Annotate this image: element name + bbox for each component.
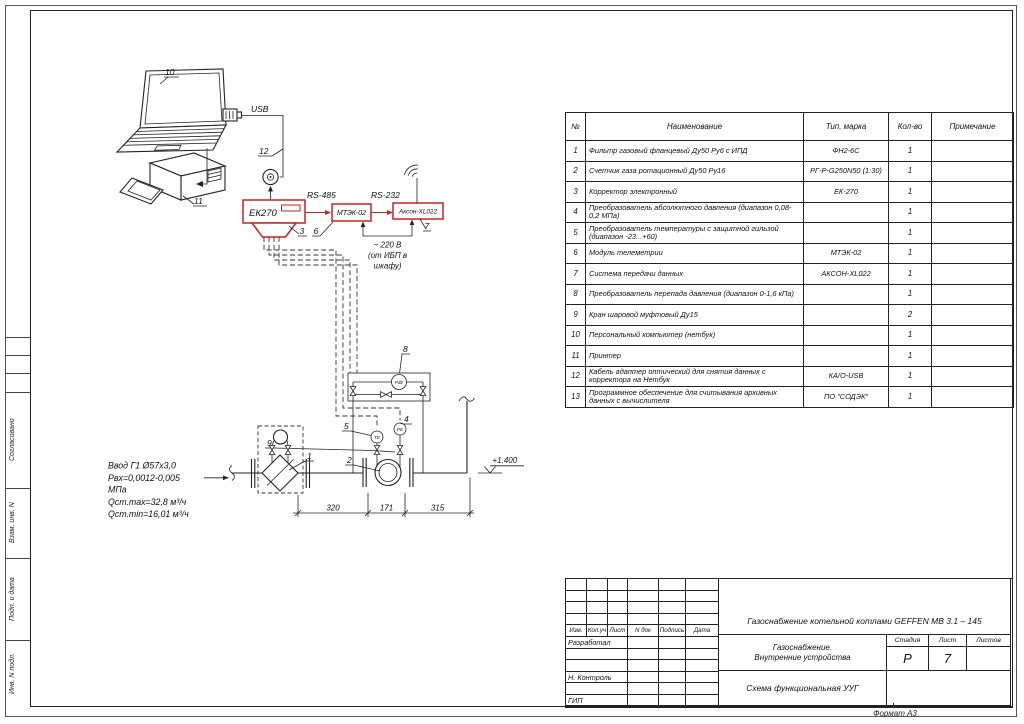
- signature-date-cell: [686, 672, 719, 684]
- equipment-row: 1Фильтр газовый фланцевый Ду50 Ру6 с ИПД…: [566, 141, 1014, 162]
- equipment-cell-qty: 1: [889, 264, 932, 285]
- revision-grid-cell: [566, 591, 587, 603]
- revision-grid-cell: [566, 614, 587, 626]
- callout-dp-number: 8: [403, 344, 408, 354]
- equipment-cell-num: 12: [566, 366, 586, 387]
- elevation-mark: +1.400: [478, 456, 524, 473]
- revision-grid-cell: [587, 579, 608, 591]
- power-note-line1: ~ 220 В: [374, 241, 402, 250]
- usb-label: USB: [251, 104, 269, 114]
- side-label-vzam-inv: Взам. инв. N: [9, 490, 25, 556]
- signature-sign-cell: [659, 695, 686, 707]
- project-title: Газоснабжение котельной котлами GEFFEN M…: [747, 616, 981, 626]
- revision-grid-cell: [608, 602, 628, 614]
- equipment-cell-name: Персональный компьютер (нетбук): [586, 325, 804, 346]
- revision-header-cell: Кол.уч: [587, 625, 608, 637]
- temperature-transducer: ТЕ: [371, 431, 383, 466]
- signature-name-cell: [628, 649, 659, 661]
- revision-grid-cell: [587, 614, 608, 626]
- equipment-cell-name: Преобразователь абсолютного давления (ди…: [586, 202, 804, 223]
- revision-grid-cell: [608, 579, 628, 591]
- equipment-cell-qty: 1: [889, 223, 932, 244]
- equipment-cell-name: Принтер: [586, 346, 804, 367]
- equipment-cell-note: [932, 182, 1014, 203]
- header-type: Тип, марка: [804, 113, 889, 141]
- printer-icon: [120, 153, 225, 204]
- object-title-cell: Газоснабжение. Внутренние устройства: [719, 635, 887, 671]
- revision-grid-cell: [686, 579, 719, 591]
- object-title-line1: Газоснабжение.: [773, 643, 832, 653]
- equipment-row: 3Корректор электронныйЕК-2701: [566, 182, 1014, 203]
- side-label-podp-data: Подп. и дата: [9, 560, 25, 638]
- equipment-row: 9Кран шаровой муфтовый Ду152: [566, 305, 1014, 326]
- equipment-cell-note: [932, 284, 1014, 305]
- equipment-cell-name: Счетчик газа ротационный Ду50 Ру16: [586, 161, 804, 182]
- corrector-label: ЕК270: [249, 208, 278, 219]
- equipment-cell-num: 4: [566, 202, 586, 223]
- dimension-320: 320: [326, 504, 340, 513]
- dp-tag: PdE: [395, 380, 405, 385]
- equipment-row: 5Преобразователь температуры с защитной …: [566, 223, 1014, 244]
- revision-grid-cell: [659, 614, 686, 626]
- equipment-row: 7Система передачи данныхАКСОН-XL0221: [566, 264, 1014, 285]
- signature-role-cell: [566, 660, 628, 672]
- side-label-approved: Согласовано: [9, 394, 25, 486]
- title-block-empty-cell: [887, 671, 1011, 706]
- dimension-315: 315: [431, 504, 445, 513]
- rs485-label: RS-485: [307, 190, 336, 200]
- equipment-cell-name: Корректор электронный: [586, 182, 804, 203]
- equipment-cell-num: 5: [566, 223, 586, 244]
- dp-transducer-assembly: PdE: [348, 373, 430, 473]
- laptop-icon: [117, 69, 226, 152]
- callout-cable: 12: [258, 146, 283, 156]
- equipment-cell-qty: 1: [889, 182, 932, 203]
- header-num: №: [566, 113, 586, 141]
- revision-header-cell: Подпись: [659, 625, 686, 637]
- equipment-cell-name: Преобразователь перепада давления (диапа…: [586, 284, 804, 305]
- callout-printer-number: 11: [194, 196, 203, 206]
- signature-name-cell: [628, 660, 659, 672]
- equipment-cell-note: [932, 141, 1014, 162]
- equipment-row: 2Счетчик газа ротационный Ду50 Ру16РГ-Р-…: [566, 161, 1014, 182]
- callout-transmission-number: 7: [425, 221, 430, 231]
- equipment-cell-name: Кран шаровой муфтовый Ду15: [586, 305, 804, 326]
- equipment-cell-num: 13: [566, 387, 586, 408]
- signature-name-cell: [628, 637, 659, 649]
- equipment-cell-qty: 1: [889, 325, 932, 346]
- equipment-cell-type: РГ-Р-G250N50 (1:30): [804, 161, 889, 182]
- equipment-cell-qty: 1: [889, 141, 932, 162]
- signature-sign-cell: [659, 637, 686, 649]
- equipment-cell-note: [932, 346, 1014, 367]
- equipment-cell-num: 2: [566, 161, 586, 182]
- revision-grid-cell: [587, 602, 608, 614]
- equipment-cell-type: [804, 202, 889, 223]
- gas-pipe: [204, 397, 475, 481]
- inlet-note-line2: Рвх=0,0012-0,005: [108, 473, 180, 483]
- object-title-line2: Внутренние устройства: [754, 653, 850, 663]
- revision-grid-cell: [587, 591, 608, 603]
- callout-pressure-number: 4: [404, 414, 409, 424]
- revision-grid-cell: [566, 579, 587, 591]
- strip-divider: [5, 558, 30, 559]
- equipment-cell-type: [804, 346, 889, 367]
- inlet-note-line4: Qст.max=32,8 м³/ч: [108, 497, 187, 507]
- signature-sign-cell: [659, 672, 686, 684]
- dimension-171: 171: [380, 504, 393, 513]
- equipment-cell-qty: 1: [889, 387, 932, 408]
- title-block: Изм.Кол.учЛистN докПодписьДатаРазработал…: [565, 578, 1013, 708]
- equipment-cell-type: [804, 284, 889, 305]
- revision-grid-cell: [686, 591, 719, 603]
- equipment-row: 11Принтер1: [566, 346, 1014, 367]
- callout-pressure: 4: [401, 414, 413, 424]
- equipment-cell-note: [932, 202, 1014, 223]
- pressure-transducer: РЕ: [394, 423, 406, 468]
- callout-corrector-number: 3: [300, 226, 305, 236]
- inlet-note-line5: Qст.min=16,01 м³/ч: [108, 509, 189, 519]
- strip-divider: [5, 640, 30, 641]
- sheets-header: Листов: [967, 635, 1011, 647]
- equipment-cell-qty: 2: [889, 305, 932, 326]
- side-label-inv-podl: Инв. N подл.: [9, 642, 25, 706]
- equipment-cell-type: МТЭК-02: [804, 243, 889, 264]
- revision-header-cell: Дата: [686, 625, 719, 637]
- sheet-value-cell: 7: [929, 647, 967, 671]
- revision-grid-cell: [659, 579, 686, 591]
- signature-role-cell: Разработал: [566, 637, 628, 649]
- equipment-cell-name: Фильтр газовый фланцевый Ду50 Ру6 с ИПД: [586, 141, 804, 162]
- equipment-cell-name: Кабель адаптер оптический для снятия дан…: [586, 366, 804, 387]
- equipment-cell-qty: 1: [889, 243, 932, 264]
- callout-temperature-number: 5: [344, 421, 349, 431]
- revision-grid-cell: [628, 614, 659, 626]
- revision-grid-cell: [608, 614, 628, 626]
- signature-date-cell: [686, 649, 719, 661]
- data-transmission-module: Аксон-XL022: [393, 203, 443, 219]
- signature-role-cell: Н. Контроль: [566, 672, 628, 684]
- signature-role-cell: [566, 683, 628, 695]
- revision-header-cell: Лист: [608, 625, 628, 637]
- equipment-row: 13Программное обеспечение для считывания…: [566, 387, 1014, 408]
- callout-transmission: 7: [420, 219, 431, 231]
- equipment-cell-note: [932, 243, 1014, 264]
- equipment-cell-type: КА/О-USB: [804, 366, 889, 387]
- signature-date-cell: [686, 660, 719, 672]
- equipment-cell-type: ФН2-6С: [804, 141, 889, 162]
- equipment-cell-type: [804, 223, 889, 244]
- telemetry-module: МТЭК-02: [332, 204, 371, 221]
- signature-sign-cell: [659, 660, 686, 672]
- equipment-cell-qty: 1: [889, 202, 932, 223]
- equipment-cell-name: Преобразователь температуры с защитной г…: [586, 223, 804, 244]
- equipment-cell-qty: 1: [889, 161, 932, 182]
- inlet-note-line1: Ввод Г1 Ø57х3,0: [108, 461, 176, 471]
- temperature-tag: ТЕ: [374, 435, 381, 440]
- callout-meter-number: 2: [346, 455, 352, 465]
- equipment-row: 4Преобразователь абсолютного давления (д…: [566, 202, 1014, 223]
- sheet-header: Лист: [929, 635, 967, 647]
- callout-temperature: 5: [342, 421, 371, 436]
- equipment-cell-num: 9: [566, 305, 586, 326]
- header-note: Примечание: [932, 113, 1014, 141]
- equipment-table: № Наименование Тип, марка Кол-во Примеча…: [565, 112, 1014, 408]
- equipment-row: 10Персональный компьютер (нетбук)1: [566, 325, 1014, 346]
- equipment-row: 12Кабель адаптер оптический для снятия д…: [566, 366, 1014, 387]
- drawing-sheet: { "page": { "format_note": "Формат А3" }…: [0, 0, 1024, 724]
- sheets-value-cell: [967, 647, 1011, 671]
- signature-date-cell: [686, 683, 719, 695]
- strip-divider: [5, 373, 30, 374]
- equipment-cell-type: АКСОН-XL022: [804, 264, 889, 285]
- equipment-cell-num: 1: [566, 141, 586, 162]
- equipment-cell-note: [932, 305, 1014, 326]
- equipment-cell-num: 3: [566, 182, 586, 203]
- strip-divider: [5, 355, 30, 356]
- equipment-cell-num: 8: [566, 284, 586, 305]
- equipment-cell-name: Модуль телеметрии: [586, 243, 804, 264]
- equipment-row: 8Преобразователь перепада давления (диап…: [566, 284, 1014, 305]
- power-note-line3: шкафу): [373, 262, 401, 271]
- inlet-note: Ввод Г1 Ø57х3,0 Рвх=0,0012-0,005 МПа Qст…: [108, 461, 189, 520]
- equipment-cell-type: ПО "СОДЭК": [804, 387, 889, 408]
- revision-grid-cell: [628, 591, 659, 603]
- revision-grid-cell: [628, 602, 659, 614]
- equipment-cell-name: Программное обеспечение для считывания а…: [586, 387, 804, 408]
- gas-filter-assembly: [252, 426, 310, 493]
- strip-divider: [5, 488, 30, 489]
- format-tick: [893, 703, 894, 708]
- signature-date-cell: [686, 637, 719, 649]
- equipment-cell-type: ЕК-270: [804, 182, 889, 203]
- revision-grid-cell: [628, 579, 659, 591]
- signature-sign-cell: [659, 683, 686, 695]
- equipment-cell-qty: 1: [889, 346, 932, 367]
- equipment-cell-num: 6: [566, 243, 586, 264]
- signature-role-cell: ГИП: [566, 695, 628, 707]
- optical-reader-icon: [263, 169, 278, 199]
- inlet-note-line3: МПа: [108, 485, 127, 495]
- revision-grid-cell: [686, 602, 719, 614]
- equipment-cell-qty: 1: [889, 284, 932, 305]
- strip-divider: [5, 392, 30, 393]
- equipment-cell-type: [804, 325, 889, 346]
- equipment-cell-qty: 1: [889, 366, 932, 387]
- signature-date-cell: [686, 695, 719, 707]
- revision-grid-cell: [686, 614, 719, 626]
- signature-name-cell: [628, 672, 659, 684]
- callout-dp: 8: [400, 344, 411, 374]
- telemetry-label: МТЭК-02: [337, 210, 366, 217]
- header-name: Наименование: [586, 113, 804, 141]
- equipment-cell-note: [932, 387, 1014, 408]
- format-note: Формат А3: [850, 709, 940, 718]
- antenna-icon: [404, 165, 418, 203]
- equipment-row: 6Модуль телеметрииМТЭК-021: [566, 243, 1014, 264]
- stage-header: Стадия: [887, 635, 929, 647]
- equipment-cell-note: [932, 366, 1014, 387]
- equipment-cell-name: Система передачи данных: [586, 264, 804, 285]
- equipment-cell-num: 10: [566, 325, 586, 346]
- usb-plug-icon: [223, 109, 242, 121]
- revision-grid-cell: [659, 591, 686, 603]
- power-supply-lines: ~ 220 В (от ИБП в шкафу): [361, 220, 415, 271]
- callout-telemetry: 6: [312, 222, 333, 236]
- revision-grid-cell: [659, 602, 686, 614]
- signature-name-cell: [628, 695, 659, 707]
- revision-grid-cell: [566, 602, 587, 614]
- strip-divider: [5, 337, 30, 338]
- signature-sign-cell: [659, 649, 686, 661]
- elevation-value: +1.400: [493, 456, 518, 465]
- equipment-cell-note: [932, 223, 1014, 244]
- revision-header-cell: N док: [628, 625, 659, 637]
- equipment-cell-note: [932, 161, 1014, 182]
- equipment-cell-note: [932, 325, 1014, 346]
- callout-laptop-number: 10: [165, 67, 175, 77]
- callout-cable-number: 12: [259, 146, 269, 156]
- equipment-cell-type: [804, 305, 889, 326]
- signature-name-cell: [628, 683, 659, 695]
- signature-role-cell: [566, 649, 628, 661]
- equipment-cell-num: 7: [566, 264, 586, 285]
- pressure-tag: РЕ: [397, 427, 404, 432]
- power-note-line2: (от ИБП в: [368, 251, 407, 260]
- doc-title-cell: Схема функциональная УУГ: [719, 671, 887, 706]
- callout-telemetry-number: 6: [314, 226, 319, 236]
- stage-value-cell: Р: [887, 647, 929, 671]
- project-title-cell: Газоснабжение котельной котлами GEFFEN M…: [719, 579, 1011, 635]
- callout-filter-number: 1: [307, 451, 312, 461]
- transmission-label: Аксон-XL022: [398, 209, 438, 216]
- rs232-label: RS-232: [371, 190, 400, 200]
- schematic: 10 11 USB 12 ЕК270: [30, 10, 565, 570]
- revision-header-cell: Изм.: [566, 625, 587, 637]
- revision-grid-cell: [608, 591, 628, 603]
- equipment-header-row: № Наименование Тип, марка Кол-во Примеча…: [566, 113, 1014, 141]
- gas-meter: [363, 458, 413, 487]
- equipment-cell-num: 11: [566, 346, 586, 367]
- header-qty: Кол-во: [889, 113, 932, 141]
- equipment-cell-note: [932, 264, 1014, 285]
